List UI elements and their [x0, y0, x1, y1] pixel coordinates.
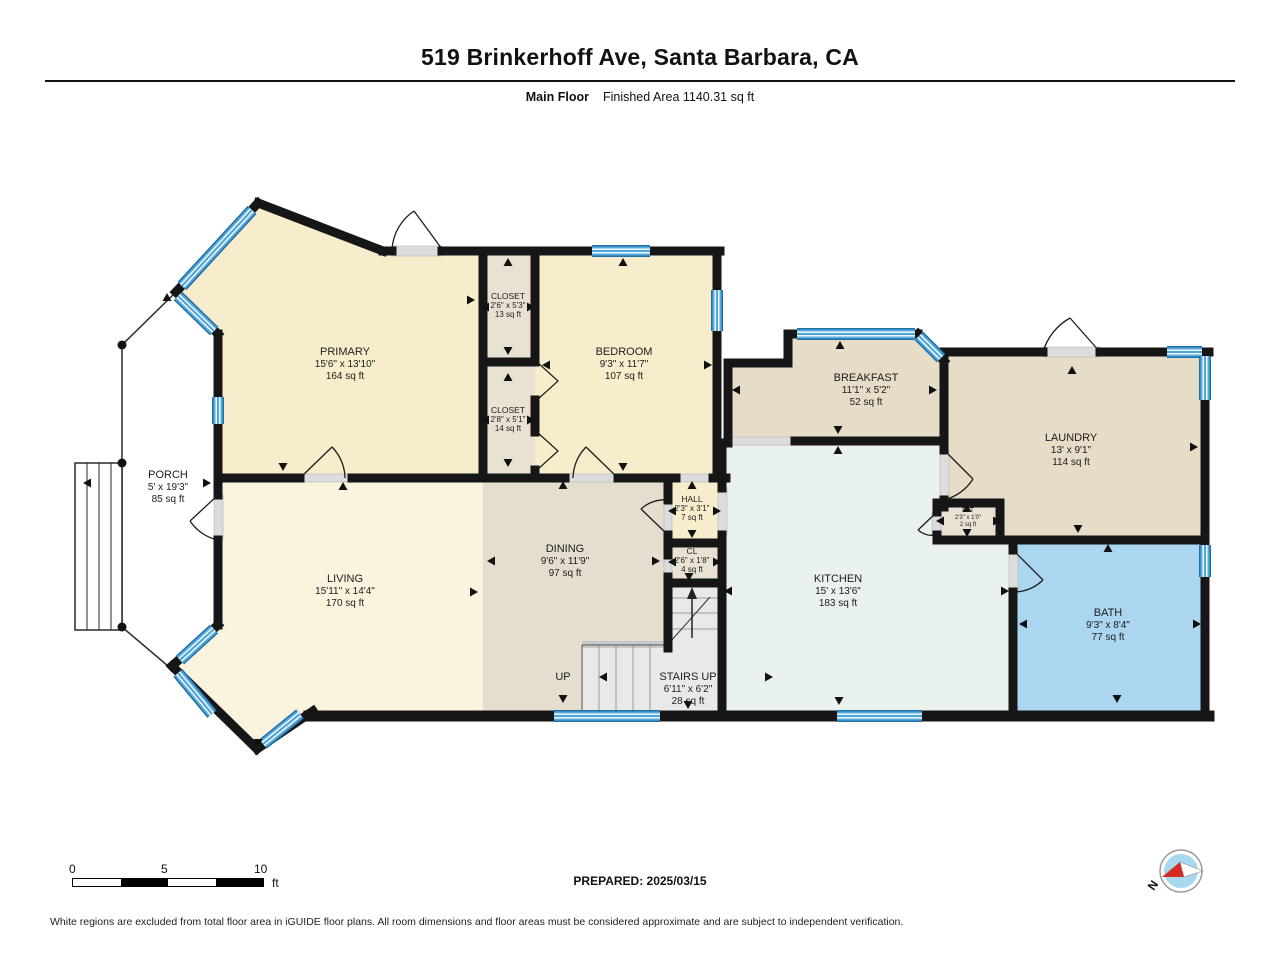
disclaimer-text: White regions are excluded from total fl…: [50, 916, 903, 928]
room-bedroom-fill: [535, 251, 717, 478]
prepared-date: PREPARED: 2025/03/15: [0, 874, 1280, 888]
room-bath-fill: [1013, 540, 1205, 711]
door-primary-exterior: [392, 211, 442, 249]
porch-outline: [75, 292, 218, 666]
floorplan-page: 519 Brinkerhoff Ave, Santa Barbara, CA M…: [0, 0, 1280, 960]
floor-plan-drawing: N: [0, 0, 1280, 960]
